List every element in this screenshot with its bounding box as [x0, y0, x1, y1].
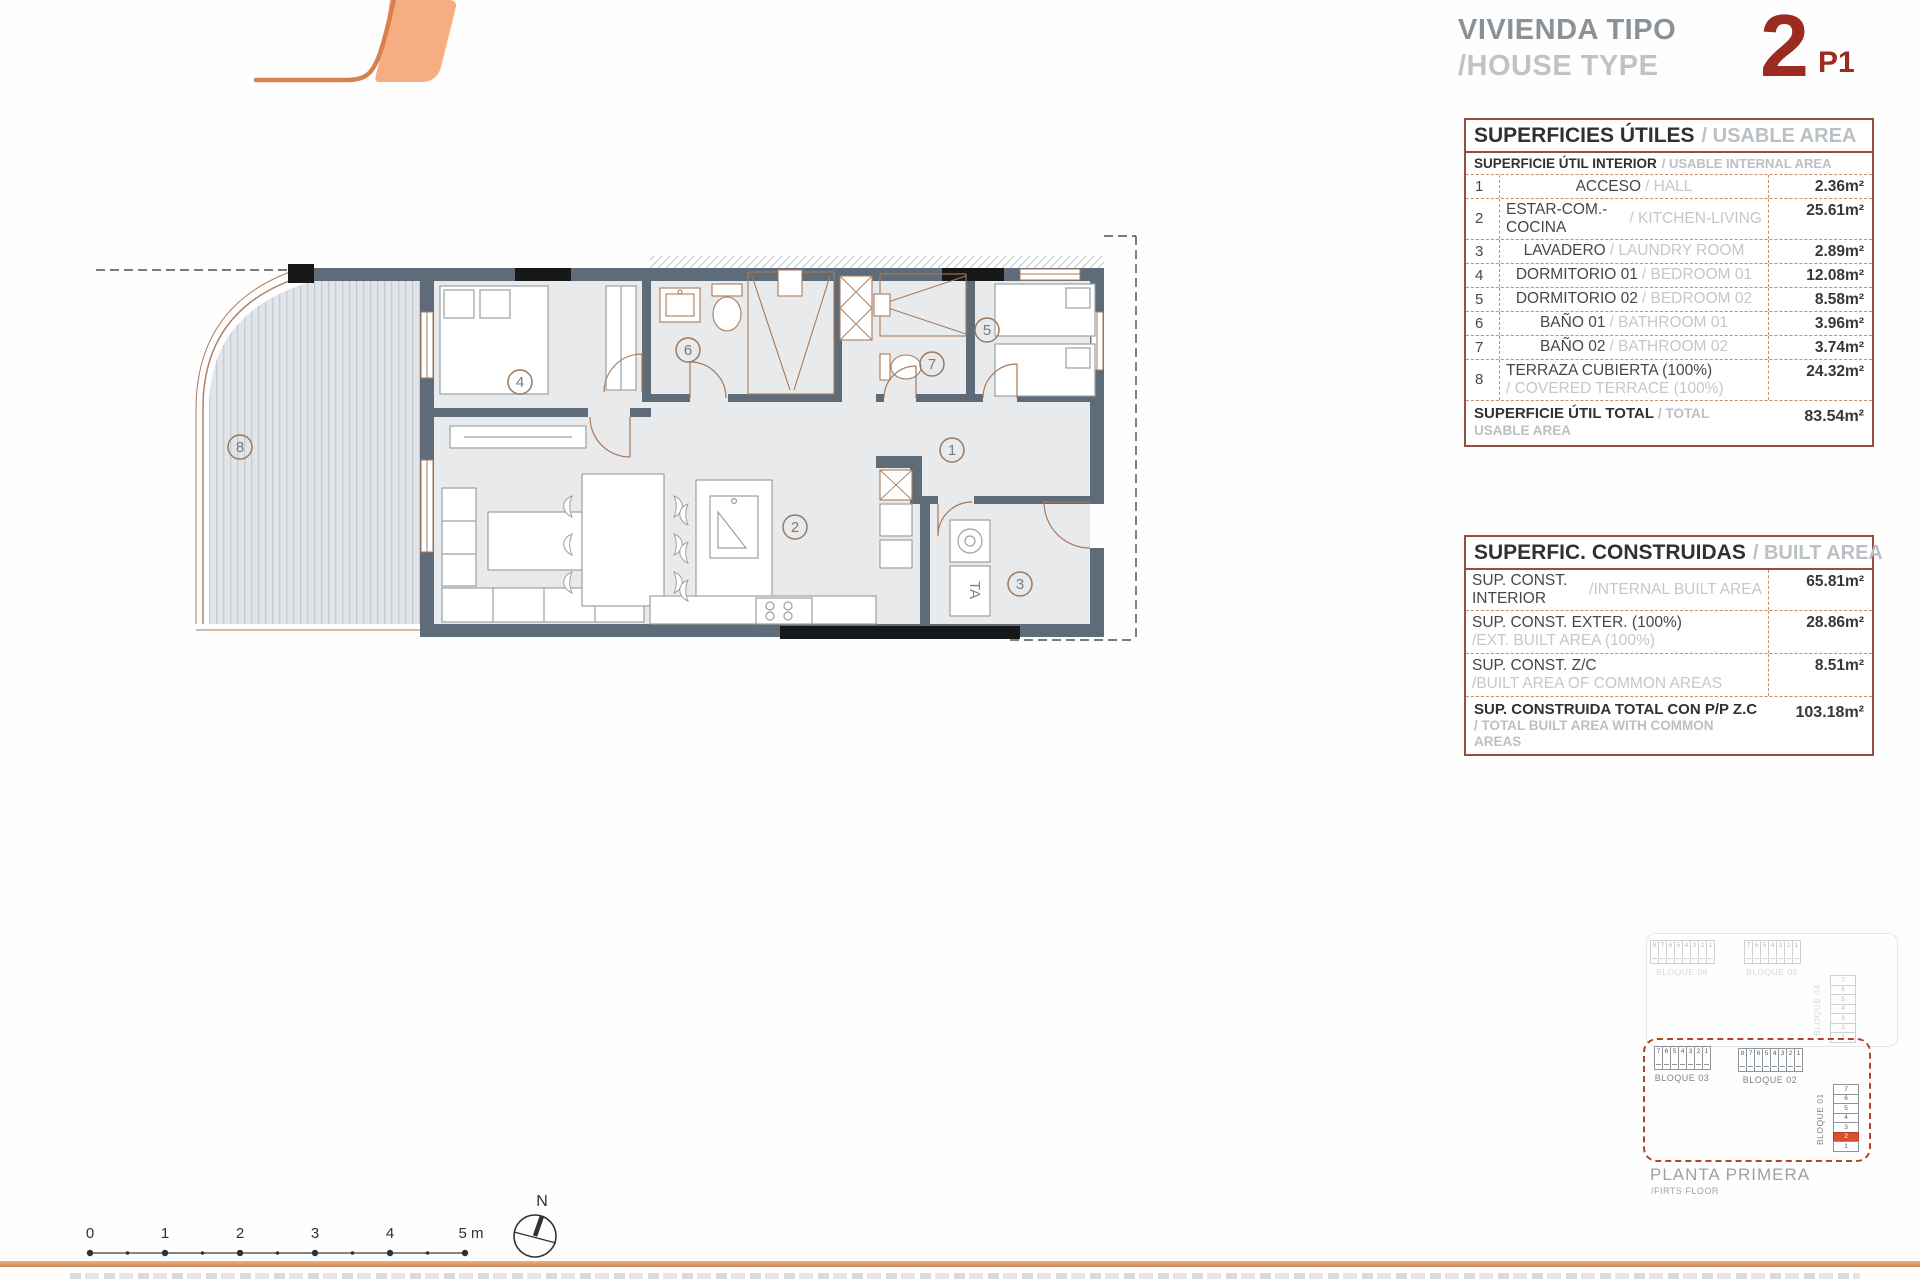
row-area-value: 8.58m²: [1768, 288, 1872, 311]
bloque-04: 7654321: [1830, 975, 1856, 1042]
area-table-row: 1ACCESO/ HALL2.36m²: [1466, 175, 1872, 199]
area-table-row: 5DORMITORIO 02/ BEDROOM 028.58m²: [1466, 288, 1872, 312]
bloque-04-label: BLOQUE 04: [1812, 975, 1822, 1045]
row-number: 2: [1466, 199, 1500, 239]
row-area-value: 12.08m²: [1768, 264, 1872, 287]
scale-bar: 0 1 2 3 4 5 m: [70, 1220, 500, 1266]
row-area-value: 8.51m²: [1768, 654, 1872, 696]
unit-cell: 1: [1792, 940, 1801, 964]
bloque-02-label: BLOQUE 02: [1738, 1075, 1802, 1085]
row-number: 7: [1466, 336, 1500, 359]
row-label: ESTAR-COM.-COCINA/ KITCHEN-LIVING: [1500, 199, 1768, 239]
sofa-left: [442, 488, 476, 586]
bloque-06: 87654321 BLOQUE 06: [1650, 940, 1714, 977]
toilet-icon: [712, 284, 742, 296]
total-label-es: SUP. CONSTRUIDA TOTAL CON P/P Z.C: [1474, 701, 1757, 718]
total-area-value: 83.54m²: [1760, 405, 1864, 426]
svg-text:7: 7: [928, 356, 936, 373]
area-table-row: 3LAVADERO/ LAUNDRY ROOM2.89m²: [1466, 240, 1872, 264]
row-number: 3: [1466, 240, 1500, 263]
page-title-es: VIVIENDA TIPO: [1458, 14, 1676, 47]
row-area-value: 28.86m²: [1768, 611, 1872, 653]
table-subtitle-es: SUPERFICIE ÚTIL INTERIOR: [1474, 156, 1657, 171]
bloque-05: 7654321 BLOQUE 05: [1744, 940, 1800, 977]
bloque-02: 87654321 BLOQUE 02: [1738, 1048, 1802, 1085]
bloque-01-label: BLOQUE 01: [1815, 1084, 1825, 1154]
developer-logo-icon: [200, 0, 456, 92]
toilet-icon: [880, 354, 890, 380]
unit-cell: 1: [1706, 940, 1715, 964]
svg-text:2: 2: [236, 1225, 244, 1242]
area-table-row: SUP. CONST. EXTER. (100%)/EXT. BUILT ARE…: [1466, 611, 1872, 654]
row-area-value: 24.32m²: [1768, 360, 1872, 400]
plan-sheet: VIVIENDA TIPO /HOUSE TYPE 2 P1 SUPERFICI…: [0, 0, 1920, 1280]
bloque-05-label: BLOQUE 05: [1744, 967, 1800, 977]
svg-text:5: 5: [983, 322, 991, 339]
row-number: 5: [1466, 288, 1500, 311]
kitchen-unit: [880, 504, 912, 536]
area-table-row: 6BAÑO 01/ BATHROOM 013.96m²: [1466, 312, 1872, 336]
unit-cell: 1: [1833, 1141, 1859, 1152]
row-area-value: 65.81m²: [1768, 570, 1872, 610]
floor-name-en: /FIRTS FLOOR: [1651, 1186, 1719, 1196]
usable-total-row: SUPERFICIE ÚTIL TOTAL/ TOTAL USABLE AREA…: [1466, 401, 1872, 446]
row-area-value: 2.36m²: [1768, 175, 1872, 198]
neighbour-hatch: [650, 256, 1104, 268]
total-label-en: / TOTAL BUILT AREA WITH COMMON AREAS: [1474, 718, 1760, 749]
footer-rule: [0, 1261, 1920, 1267]
floor-name-es: PLANTA PRIMERA: [1650, 1165, 1810, 1185]
row-number: 6: [1466, 312, 1500, 335]
svg-text:4: 4: [516, 374, 524, 391]
area-table-row: 4DORMITORIO 01/ BEDROOM 0112.08m²: [1466, 264, 1872, 288]
built-area-table-title: SUPERFIC. CONSTRUIDAS / BUILT AREA: [1466, 537, 1872, 570]
unit-cell: 1: [1794, 1048, 1803, 1072]
svg-text:2: 2: [791, 519, 799, 536]
row-number: 4: [1466, 264, 1500, 287]
north-compass-icon: N: [498, 1192, 574, 1264]
table-title-en: / USABLE AREA: [1702, 125, 1857, 148]
row-label: ACCESO/ HALL: [1500, 175, 1768, 198]
table-title-es: SUPERFICIES ÚTILES: [1474, 124, 1695, 148]
scale-labels: 0 1 2 3 4 5 m: [86, 1225, 484, 1242]
svg-text:1: 1: [161, 1225, 169, 1242]
ta-appliance-label: TA: [966, 581, 983, 599]
total-area-value: 103.18m²: [1760, 701, 1864, 722]
table-subtitle-en: / USABLE INTERNAL AREA: [1662, 156, 1832, 171]
table-title-es: SUPERFIC. CONSTRUIDAS: [1474, 541, 1746, 565]
stove: [756, 598, 812, 624]
bloque-01: 7654321: [1833, 1084, 1859, 1151]
row-label: BAÑO 02/ BATHROOM 02: [1500, 336, 1768, 359]
area-table-row: 7BAÑO 02/ BATHROOM 023.74m²: [1466, 336, 1872, 360]
built-total-row: SUP. CONSTRUIDA TOTAL CON P/P Z.C / TOTA…: [1466, 697, 1872, 755]
row-label: BAÑO 01/ BATHROOM 01: [1500, 312, 1768, 335]
bloque-03: 7654321 BLOQUE 03: [1654, 1046, 1710, 1083]
svg-text:3: 3: [1016, 576, 1024, 593]
svg-text:6: 6: [684, 342, 692, 359]
row-area-value: 3.96m²: [1768, 312, 1872, 335]
duct-shaft: [840, 276, 872, 340]
svg-text:N: N: [536, 1193, 548, 1210]
floor-plan-drawing: 8 4 6 7 5 1 2 3 TA: [90, 212, 1140, 657]
row-label: DORMITORIO 01/ BEDROOM 01: [1500, 264, 1768, 287]
svg-text:5 m: 5 m: [458, 1225, 483, 1242]
row-label: TERRAZA CUBIERTA (100%)/ COVERED TERRACE…: [1500, 360, 1768, 400]
row-label: SUP. CONST. Z/C/BUILT AREA OF COMMON ARE…: [1466, 654, 1768, 696]
row-number: 1: [1466, 175, 1500, 198]
area-table-row: 2ESTAR-COM.-COCINA/ KITCHEN-LIVING25.61m…: [1466, 199, 1872, 240]
row-number: 8: [1466, 360, 1500, 400]
svg-text:8: 8: [236, 439, 244, 456]
built-area-table: SUPERFIC. CONSTRUIDAS / BUILT AREA SUP. …: [1464, 535, 1874, 756]
usable-area-table: SUPERFICIES ÚTILES / USABLE AREA SUPERFI…: [1464, 118, 1874, 447]
row-area-value: 25.61m²: [1768, 199, 1872, 239]
cutoff-disclaimer-text: [70, 1273, 1860, 1279]
svg-text:1: 1: [948, 442, 956, 459]
row-label: SUP. CONST. EXTER. (100%)/EXT. BUILT ARE…: [1466, 611, 1768, 653]
table-title-en: / BUILT AREA: [1753, 542, 1883, 565]
area-table-row: SUP. CONST. Z/C/BUILT AREA OF COMMON ARE…: [1466, 654, 1872, 697]
area-table-row: SUP. CONST. INTERIOR/INTERNAL BUILT AREA…: [1466, 570, 1872, 611]
island-sink: [710, 496, 758, 558]
svg-text:3: 3: [311, 1225, 319, 1242]
bloque-06-label: BLOQUE 06: [1650, 967, 1714, 977]
bloque-03-label: BLOQUE 03: [1654, 1073, 1710, 1083]
row-area-value: 3.74m²: [1768, 336, 1872, 359]
area-table-row: 8TERRAZA CUBIERTA (100%)/ COVERED TERRAC…: [1466, 360, 1872, 401]
total-label-es: SUPERFICIE ÚTIL TOTAL: [1474, 405, 1654, 422]
house-type-floor: P1: [1818, 46, 1855, 80]
house-type-number: 2: [1760, 0, 1809, 92]
unit-cell: 1: [1702, 1046, 1711, 1070]
usable-area-table-subtitle: SUPERFICIE ÚTIL INTERIOR / USABLE INTERN…: [1466, 153, 1872, 175]
svg-text:0: 0: [86, 1225, 94, 1242]
kitchen-unit: [880, 540, 912, 568]
dining-table: [582, 474, 664, 606]
page-title-en: /HOUSE TYPE: [1458, 50, 1659, 83]
row-label: LAVADERO/ LAUNDRY ROOM: [1500, 240, 1768, 263]
row-label: DORMITORIO 02/ BEDROOM 02: [1500, 288, 1768, 311]
row-label: SUP. CONST. INTERIOR/INTERNAL BUILT AREA: [1466, 570, 1768, 610]
usable-area-table-title: SUPERFICIES ÚTILES / USABLE AREA: [1466, 120, 1872, 153]
row-area-value: 2.89m²: [1768, 240, 1872, 263]
svg-text:4: 4: [386, 1225, 394, 1242]
